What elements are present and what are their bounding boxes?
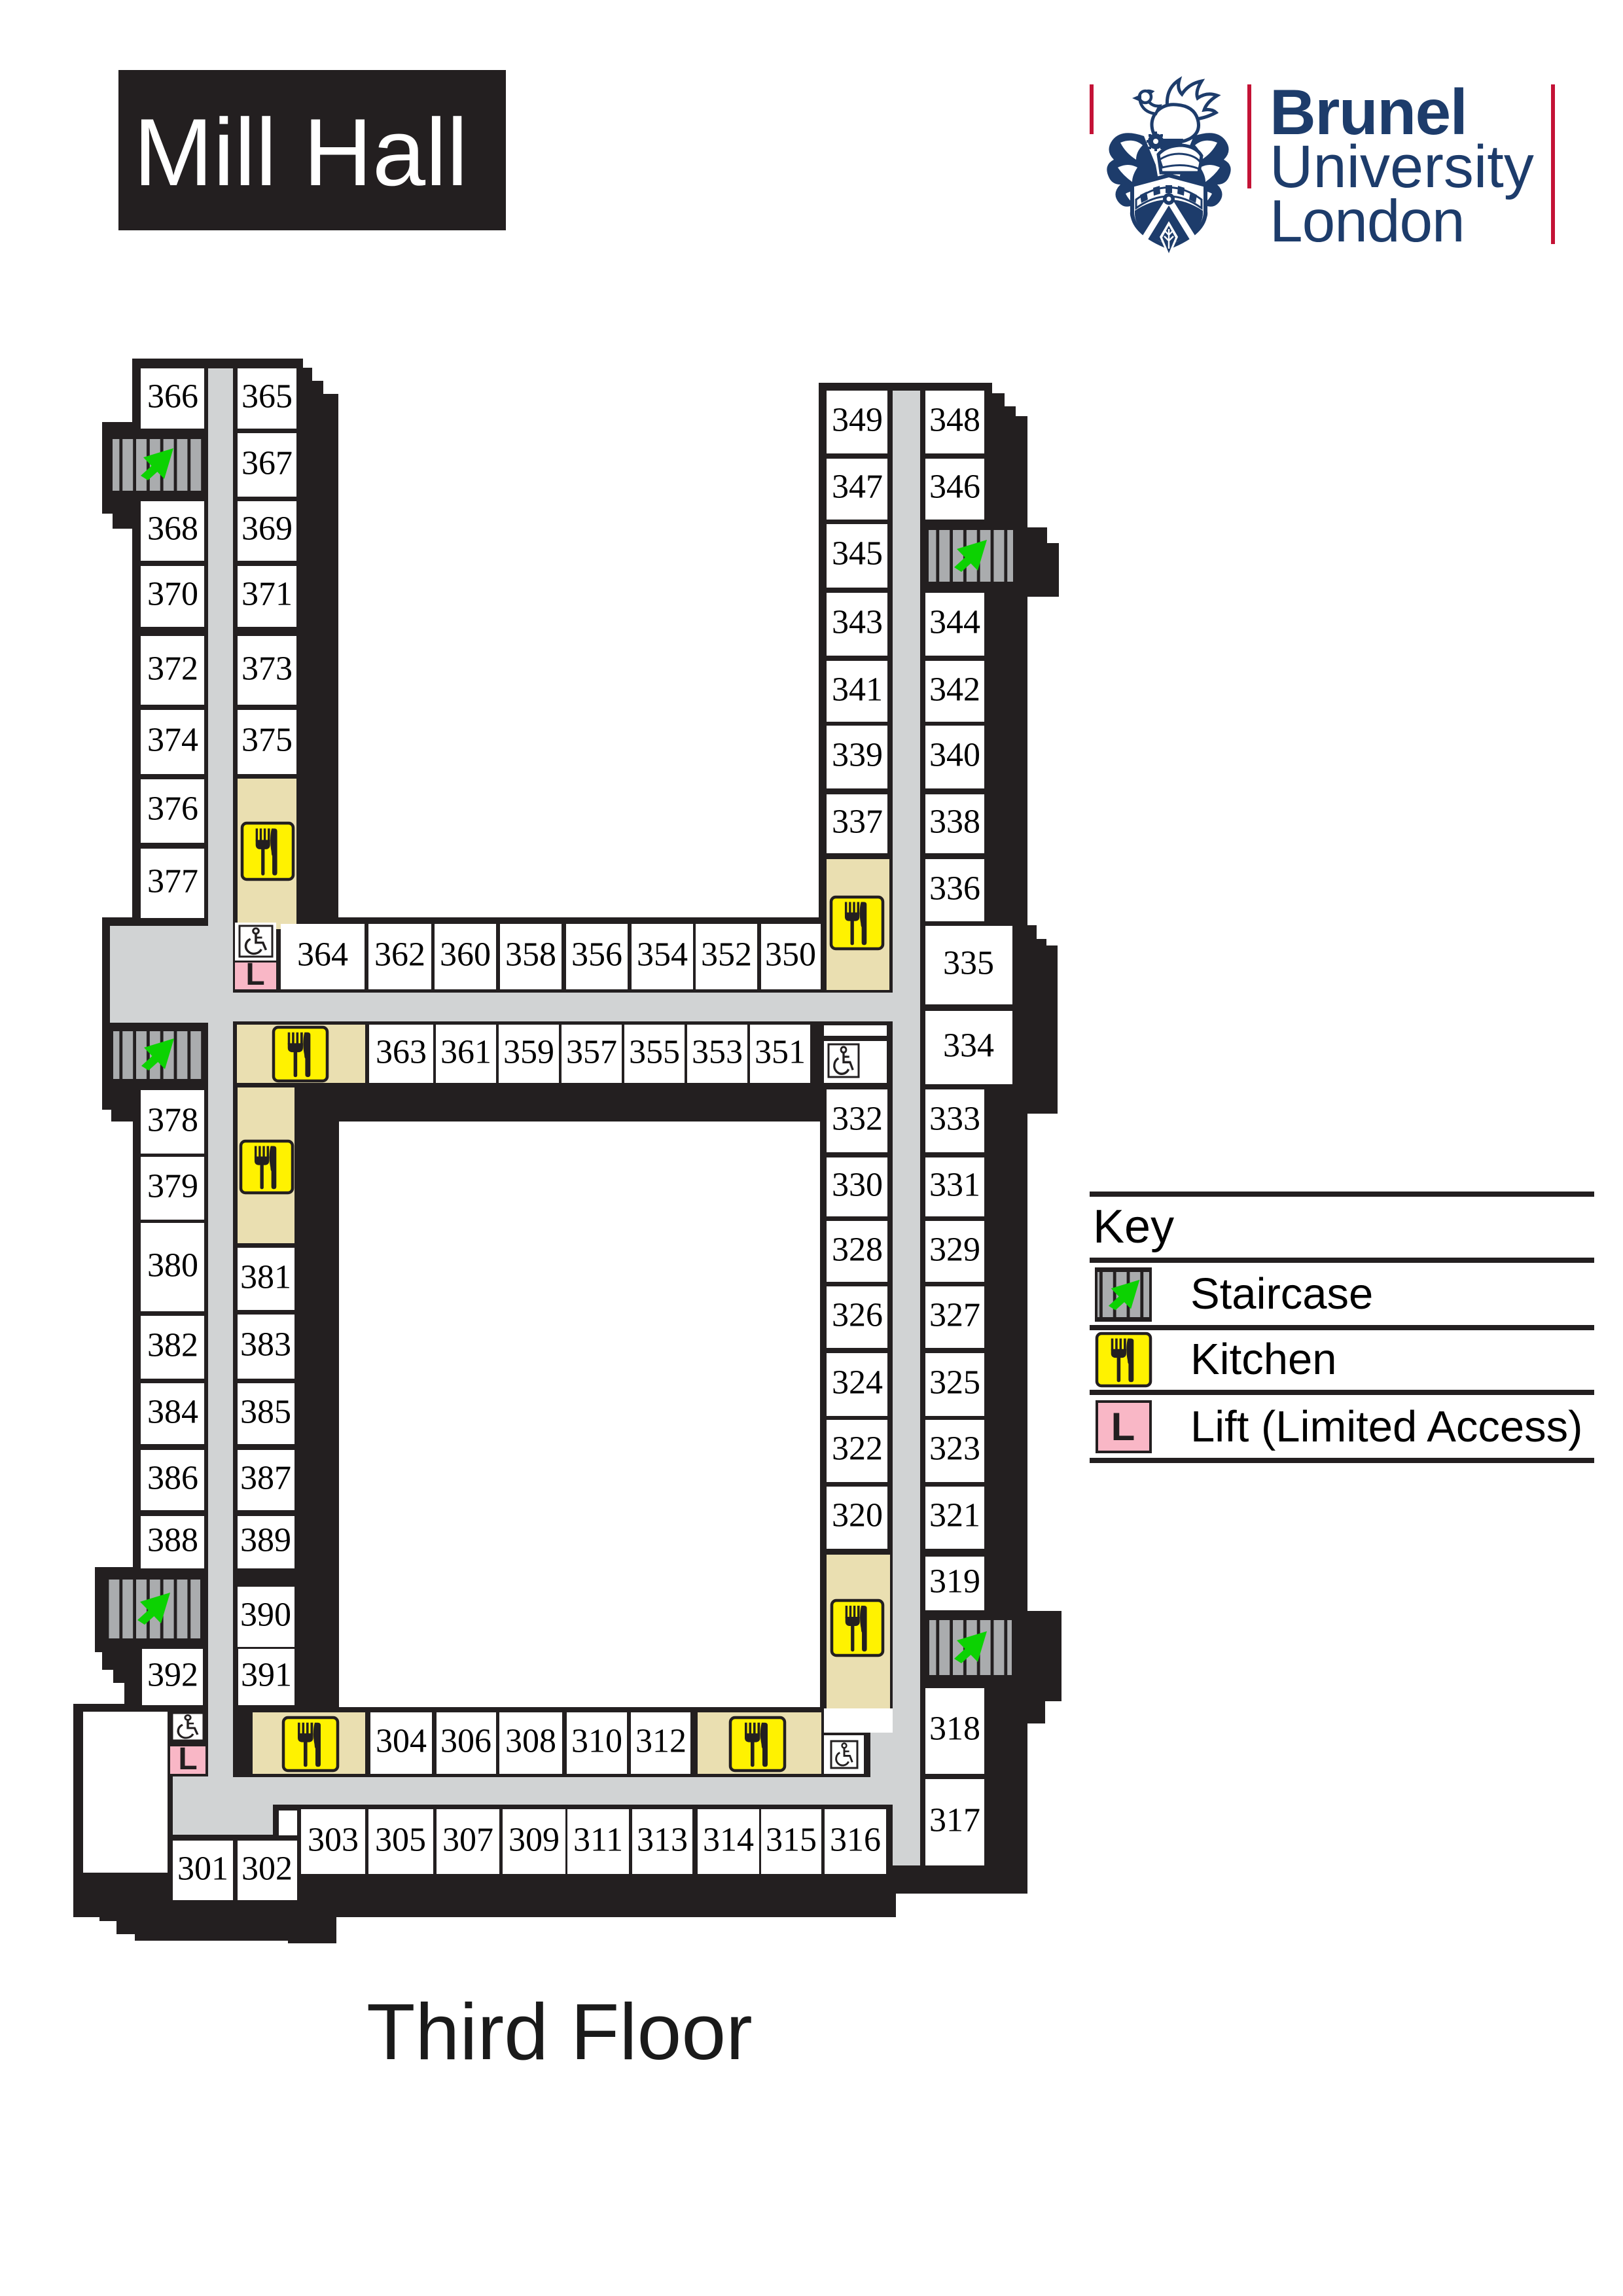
svg-text:339: 339 xyxy=(832,737,883,774)
svg-text:L: L xyxy=(1111,1405,1135,1449)
svg-text:379: 379 xyxy=(147,1168,198,1205)
svg-text:373: 373 xyxy=(241,650,293,688)
svg-text:381: 381 xyxy=(240,1259,291,1296)
svg-text:309: 309 xyxy=(508,1822,560,1859)
svg-text:314: 314 xyxy=(703,1822,754,1859)
svg-text:327: 327 xyxy=(929,1297,980,1334)
svg-text:392: 392 xyxy=(147,1657,198,1694)
svg-text:341: 341 xyxy=(832,671,883,709)
svg-text:312: 312 xyxy=(635,1723,687,1760)
svg-text:363: 363 xyxy=(376,1034,427,1071)
svg-text:354: 354 xyxy=(637,936,688,974)
svg-text:303: 303 xyxy=(308,1822,359,1859)
svg-text:317: 317 xyxy=(929,1802,980,1839)
svg-text:391: 391 xyxy=(241,1657,292,1694)
svg-text:369: 369 xyxy=(241,510,293,548)
svg-text:324: 324 xyxy=(832,1364,883,1402)
svg-text:390: 390 xyxy=(240,1597,291,1634)
svg-text:307: 307 xyxy=(442,1822,493,1859)
svg-text:371: 371 xyxy=(241,576,293,613)
svg-text:Lift (Limited Access): Lift (Limited Access) xyxy=(1190,1402,1582,1451)
svg-text:London: London xyxy=(1270,188,1465,255)
svg-text:385: 385 xyxy=(240,1394,291,1431)
svg-text:L: L xyxy=(245,957,264,992)
svg-text:367: 367 xyxy=(241,445,293,482)
svg-text:326: 326 xyxy=(832,1297,883,1334)
svg-text:351: 351 xyxy=(755,1034,806,1071)
svg-text:333: 333 xyxy=(929,1101,980,1138)
svg-text:389: 389 xyxy=(240,1522,291,1559)
svg-text:343: 343 xyxy=(832,604,883,641)
svg-text:366: 366 xyxy=(147,378,198,415)
svg-text:331: 331 xyxy=(929,1167,980,1204)
svg-text:340: 340 xyxy=(929,737,980,774)
svg-text:301: 301 xyxy=(177,1850,228,1888)
svg-text:302: 302 xyxy=(241,1850,293,1888)
svg-text:350: 350 xyxy=(765,936,816,974)
svg-text:372: 372 xyxy=(147,650,198,688)
svg-text:337: 337 xyxy=(832,804,883,841)
svg-text:382: 382 xyxy=(147,1327,198,1364)
svg-text:362: 362 xyxy=(374,936,425,974)
svg-text:323: 323 xyxy=(929,1430,980,1468)
svg-text:310: 310 xyxy=(571,1723,622,1760)
svg-text:334: 334 xyxy=(943,1027,994,1065)
svg-text:308: 308 xyxy=(505,1723,556,1760)
svg-text:319: 319 xyxy=(929,1563,980,1600)
svg-text:Third Floor: Third Floor xyxy=(366,1987,753,2076)
svg-text:338: 338 xyxy=(929,804,980,841)
svg-text:329: 329 xyxy=(929,1231,980,1269)
svg-text:359: 359 xyxy=(503,1034,554,1071)
svg-text:318: 318 xyxy=(929,1710,980,1748)
svg-text:388: 388 xyxy=(147,1522,198,1559)
svg-text:322: 322 xyxy=(832,1430,883,1468)
svg-text:311: 311 xyxy=(573,1822,623,1859)
svg-text:380: 380 xyxy=(147,1247,198,1284)
svg-text:335: 335 xyxy=(943,945,994,982)
svg-text:345: 345 xyxy=(832,535,883,573)
svg-text:315: 315 xyxy=(766,1822,817,1859)
svg-text:383: 383 xyxy=(240,1326,291,1364)
svg-text:349: 349 xyxy=(832,402,883,439)
svg-text:Kitchen: Kitchen xyxy=(1190,1335,1336,1384)
svg-text:348: 348 xyxy=(929,402,980,439)
svg-text:374: 374 xyxy=(147,722,198,759)
svg-text:320: 320 xyxy=(832,1497,883,1534)
svg-text:Mill Hall: Mill Hall xyxy=(134,99,468,205)
svg-text:321: 321 xyxy=(929,1497,980,1534)
svg-text:357: 357 xyxy=(566,1034,617,1071)
svg-text:361: 361 xyxy=(440,1034,491,1071)
svg-text:353: 353 xyxy=(692,1034,743,1071)
svg-text:384: 384 xyxy=(147,1394,198,1431)
svg-text:316: 316 xyxy=(830,1822,881,1859)
svg-text:330: 330 xyxy=(832,1167,883,1204)
svg-text:376: 376 xyxy=(147,790,198,828)
svg-text:378: 378 xyxy=(147,1102,198,1139)
svg-text:377: 377 xyxy=(147,863,198,900)
svg-text:342: 342 xyxy=(929,671,980,709)
svg-text:Key: Key xyxy=(1093,1201,1174,1253)
svg-text:364: 364 xyxy=(297,936,348,974)
svg-text:375: 375 xyxy=(241,722,293,759)
svg-text:344: 344 xyxy=(929,604,980,641)
svg-text:365: 365 xyxy=(241,378,293,415)
svg-text:336: 336 xyxy=(929,870,980,908)
svg-text:368: 368 xyxy=(147,510,198,548)
svg-text:358: 358 xyxy=(505,936,556,974)
svg-text:355: 355 xyxy=(629,1034,680,1071)
svg-text:347: 347 xyxy=(832,468,883,506)
svg-text:Staircase: Staircase xyxy=(1190,1269,1373,1318)
svg-text:313: 313 xyxy=(637,1822,688,1859)
svg-text:356: 356 xyxy=(571,936,622,974)
svg-text:306: 306 xyxy=(440,1723,491,1760)
svg-text:370: 370 xyxy=(147,576,198,613)
svg-text:346: 346 xyxy=(929,468,980,506)
svg-text:352: 352 xyxy=(701,936,752,974)
svg-text:L: L xyxy=(178,1742,197,1776)
svg-text:325: 325 xyxy=(929,1364,980,1402)
svg-text:304: 304 xyxy=(376,1723,427,1760)
svg-text:305: 305 xyxy=(375,1822,426,1859)
svg-text:332: 332 xyxy=(832,1101,883,1138)
svg-text:386: 386 xyxy=(147,1460,198,1497)
svg-text:328: 328 xyxy=(832,1231,883,1269)
svg-text:387: 387 xyxy=(240,1460,291,1497)
svg-text:360: 360 xyxy=(440,936,491,974)
